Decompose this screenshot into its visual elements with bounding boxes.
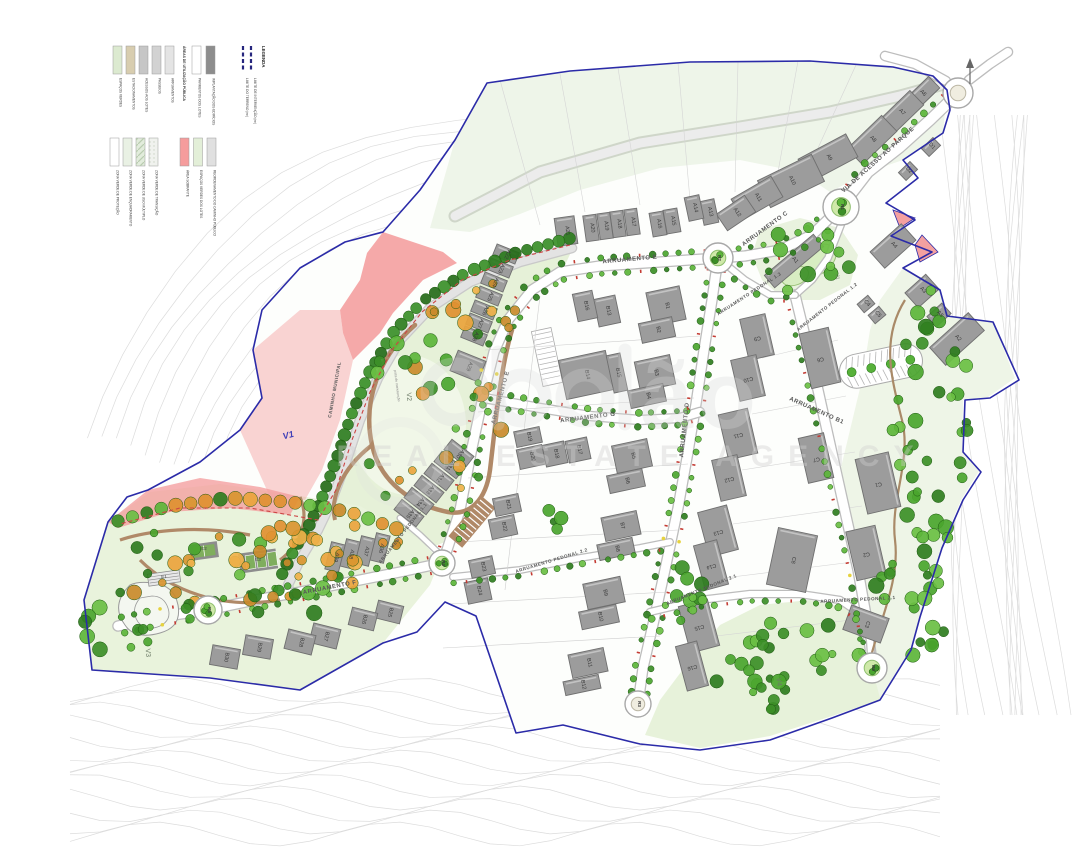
legend-swatch bbox=[194, 138, 203, 166]
roundabout-label-R3: R3 bbox=[637, 701, 642, 707]
legend-swatch bbox=[139, 46, 148, 74]
legend-swatch bbox=[180, 138, 189, 166]
area-label-J1: J1 bbox=[834, 274, 840, 280]
legend-label: ZONA VERDE DE TRANSIÇÃO bbox=[155, 170, 160, 216]
plan-page: A1A2A3A4A5A6A7A8A9A10A11A12A13A14A15A16A… bbox=[0, 0, 1080, 855]
area-label-V3: V3 bbox=[144, 648, 152, 657]
legend-label: ZONA VERDE DE USO MÚLTIPLO bbox=[142, 170, 147, 221]
legend-label: ESTACIONAMENTOS bbox=[132, 78, 136, 110]
legend-label: ESPAÇOS VERDES DOS LOTES bbox=[199, 170, 203, 218]
area-label-V4: V4 bbox=[775, 677, 783, 686]
legend-label: ZONA VERDE DE ENQUADRAMENTO bbox=[129, 170, 133, 227]
legend-swatch bbox=[123, 138, 132, 166]
legend-label: ÁREAS DE UTILIZAÇÃO PÚBLICA bbox=[182, 46, 187, 102]
legend-label: PAVIMENTOS DOS LOTES bbox=[198, 78, 202, 118]
legend-label: ARRUAMENTOS bbox=[171, 78, 175, 103]
legend-label: ÁREA SOBRANTE bbox=[186, 170, 190, 197]
roundabout-label-R4: R4 bbox=[441, 560, 446, 566]
roundabout-label-R5: R5 bbox=[207, 607, 212, 613]
legend-swatch bbox=[126, 46, 135, 74]
area-label-E3: E3 bbox=[255, 557, 261, 562]
legend-label: ZONA VERDE DE PROTEÇÃO bbox=[116, 170, 121, 215]
area-label-E1: E1 bbox=[161, 574, 167, 579]
legend-swatch-pattern bbox=[149, 138, 158, 166]
legend-label: REORDENAMENTO DO CAMINHO PÚBLICO bbox=[213, 170, 218, 237]
roundabout-label-R2: R2 bbox=[717, 255, 722, 261]
legend-swatch bbox=[113, 46, 122, 74]
roundabout-label-R1: R1 bbox=[840, 204, 845, 210]
legend-swatch bbox=[152, 46, 161, 74]
legend-swatch bbox=[165, 46, 174, 74]
legend-swatch bbox=[206, 46, 215, 74]
legend-swatch bbox=[110, 138, 119, 166]
legend-swatch bbox=[192, 46, 201, 74]
roundabout-label-R6: R6 bbox=[871, 665, 876, 671]
area-label-E2: E2 bbox=[201, 546, 207, 551]
legend-label: IMPLANTAÇÃO DOS EDIFÍCIOS bbox=[212, 78, 217, 125]
legend-swatch-pattern bbox=[136, 138, 145, 166]
legend-label: LEGENDA bbox=[261, 46, 266, 68]
watermark-logo-visible-letters: ão bbox=[640, 342, 760, 449]
legend-swatch bbox=[207, 138, 216, 166]
legend-label: ESPAÇOS VERDES bbox=[119, 78, 123, 107]
watermark-tagline: REAL ESTATE AGENCY bbox=[337, 440, 928, 473]
area-label-V2: V2 bbox=[405, 392, 413, 401]
legend-label: LIMITE DO TERRENO (m²) bbox=[245, 78, 249, 117]
legend: ESPAÇOS VERDESESTACIONAMENTOSACESSOS AOS… bbox=[110, 46, 266, 237]
site-plan-map: A1A2A3A4A5A6A7A8A9A10A11A12A13A14A15A16A… bbox=[0, 0, 1080, 855]
legend-label: ACESSOS AOS LOTES bbox=[145, 78, 149, 112]
legend-label: LIMITE DE INTERVENÇÃO (m²) bbox=[253, 78, 258, 124]
legend-label: PASSEIOS bbox=[158, 78, 162, 94]
